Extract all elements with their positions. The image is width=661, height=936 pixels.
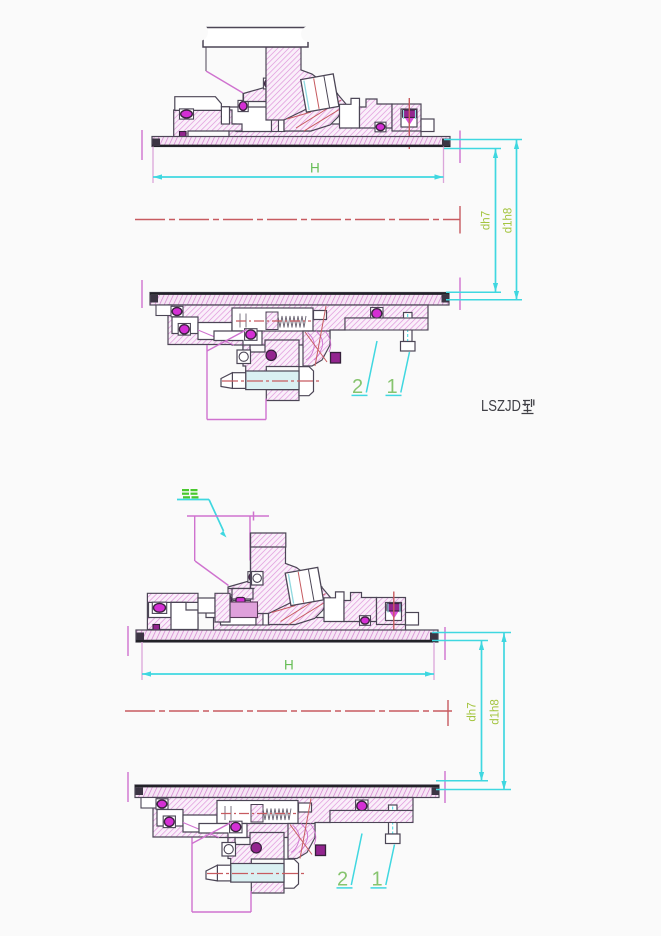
svg-text:dh7: dh7 xyxy=(467,702,479,721)
svg-text:2: 2 xyxy=(352,376,363,398)
svg-text:1: 1 xyxy=(372,869,383,891)
svg-text:dh7: dh7 xyxy=(481,211,493,230)
svg-text:H: H xyxy=(284,658,294,673)
svg-text:H: H xyxy=(310,161,320,176)
svg-text:2: 2 xyxy=(337,869,348,891)
svg-text:LSZJD: LSZJD xyxy=(481,398,521,415)
svg-text:1: 1 xyxy=(387,376,398,398)
svg-text:d1h8: d1h8 xyxy=(503,208,515,234)
svg-text:d1h8: d1h8 xyxy=(490,699,502,725)
